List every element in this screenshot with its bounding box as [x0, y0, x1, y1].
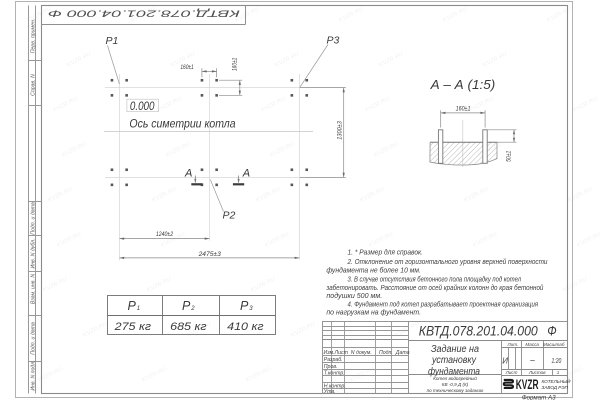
- svg-text:160±1: 160±1: [231, 58, 238, 71]
- svg-text:Разраб.: Разраб.: [324, 357, 343, 363]
- svg-text:3. В случае отсутствия бетонн: 3. В случае отсутствия бетонного пола пл…: [348, 276, 522, 284]
- svg-text:–: –: [529, 356, 535, 365]
- svg-text:Лит.: Лит.: [507, 342, 519, 347]
- svg-text:1240±2: 1240±2: [156, 231, 174, 238]
- svg-text:Подп.: Подп.: [379, 350, 393, 356]
- svg-text:Масса: Масса: [525, 342, 539, 347]
- svg-text:Инв. N дубл.: Инв. N дубл.: [30, 238, 36, 268]
- svg-text:Ось симетрии котла: Ось симетрии котла: [129, 119, 235, 131]
- svg-text:Подп. и дата: Подп. и дата: [30, 202, 36, 235]
- svg-text:Формат А3: Формат А3: [522, 394, 556, 400]
- svg-text:Р2: Р2: [223, 209, 236, 221]
- svg-text:Утв.: Утв.: [324, 389, 336, 395]
- svg-text:Инв. N подл.: Инв. N подл.: [30, 360, 36, 390]
- svg-text:Перв. примен.: Перв. примен.: [30, 19, 36, 53]
- svg-text:подушки 500 мм.: подушки 500 мм.: [326, 292, 382, 300]
- svg-text:А: А: [242, 167, 250, 179]
- svg-text:установку: установку: [431, 355, 477, 366]
- svg-text:ЗАВОД РЭП: ЗАВОД РЭП: [542, 385, 569, 390]
- svg-text:0.000: 0.000: [130, 101, 155, 113]
- svg-text:КВТД.078.201.04.000 Ф: КВТД.078.201.04.000 Ф: [48, 8, 240, 18]
- svg-text:КОТЕЛЬНЫЙ: КОТЕЛЬНЫЙ: [542, 377, 572, 384]
- svg-text:1300±3: 1300±3: [336, 121, 343, 140]
- svg-text:Т.контр.: Т.контр.: [324, 371, 345, 377]
- svg-text:Листов: Листов: [528, 370, 546, 375]
- svg-text:по нагрузкам на фундамент.: по нагрузкам на фундамент.: [326, 309, 421, 317]
- svg-text:1. * Размер для справок.: 1. * Размер для справок.: [348, 249, 424, 257]
- svg-text:Котел водогрейный: Котел водогрейный: [433, 375, 477, 381]
- svg-text:N докум.: N докум.: [351, 350, 372, 356]
- svg-text:2. Отклонение от горизонтал: 2. Отклонение от горизонтального уровня …: [347, 258, 548, 266]
- svg-text:Р: Р: [128, 299, 137, 313]
- svg-text:Масштаб: Масштаб: [543, 342, 565, 347]
- svg-text:Р: Р: [240, 299, 249, 313]
- svg-text:685 кг: 685 кг: [170, 321, 207, 333]
- svg-text:2: 2: [190, 306, 195, 312]
- svg-text:50±1: 50±1: [506, 151, 513, 162]
- svg-text:Ф: Ф: [547, 323, 556, 339]
- svg-text:275 кг: 275 кг: [113, 321, 151, 333]
- svg-text:1: 1: [557, 370, 560, 375]
- svg-text:Пров.: Пров.: [324, 364, 338, 370]
- svg-text:Подп. и дата: Подп. и дата: [30, 322, 36, 355]
- svg-text:410 кг: 410 кг: [227, 321, 264, 333]
- svg-text:Взам. инв. N: Взам. инв. N: [30, 274, 36, 304]
- svg-text:160±1: 160±1: [180, 64, 193, 71]
- svg-text:Дата: Дата: [395, 350, 410, 356]
- svg-text:Р1: Р1: [106, 35, 119, 47]
- svg-text:Задание на: Задание на: [431, 344, 479, 355]
- svg-text:1: 1: [137, 306, 140, 312]
- svg-text:Лист: Лист: [505, 370, 518, 375]
- svg-text:Изм.Лист: Изм.Лист: [324, 350, 349, 356]
- svg-text:Р3: Р3: [327, 35, 340, 47]
- svg-text:4. Фундамент под котел раз: 4. Фундамент под котел разрабатывает про…: [348, 300, 539, 308]
- svg-text:160±1: 160±1: [456, 106, 471, 113]
- svg-text:по техническому заданию: по техническому заданию: [427, 388, 484, 393]
- svg-text:КВ -0,9 Д (К): КВ -0,9 Д (К): [442, 382, 469, 387]
- svg-text:А – А (1:5): А – А (1:5): [430, 77, 496, 92]
- svg-text:КВТД.078.201.04.000: КВТД.078.201.04.000: [419, 323, 538, 339]
- svg-text:Р: Р: [182, 299, 191, 313]
- svg-text:1:20: 1:20: [552, 356, 562, 365]
- svg-text:И: И: [502, 356, 508, 365]
- svg-text:KVZR: KVZR: [516, 377, 539, 392]
- svg-text:А: А: [184, 167, 192, 179]
- svg-text:2475±3: 2475±3: [198, 251, 222, 258]
- svg-text:забетонировать. Расстояние о: забетонировать. Расстояние от осей крайн…: [325, 284, 543, 292]
- svg-text:Справ. N: Справ. N: [30, 74, 36, 96]
- svg-text:фундамента не более 10 мм.: фундамента не более 10 мм.: [326, 266, 421, 274]
